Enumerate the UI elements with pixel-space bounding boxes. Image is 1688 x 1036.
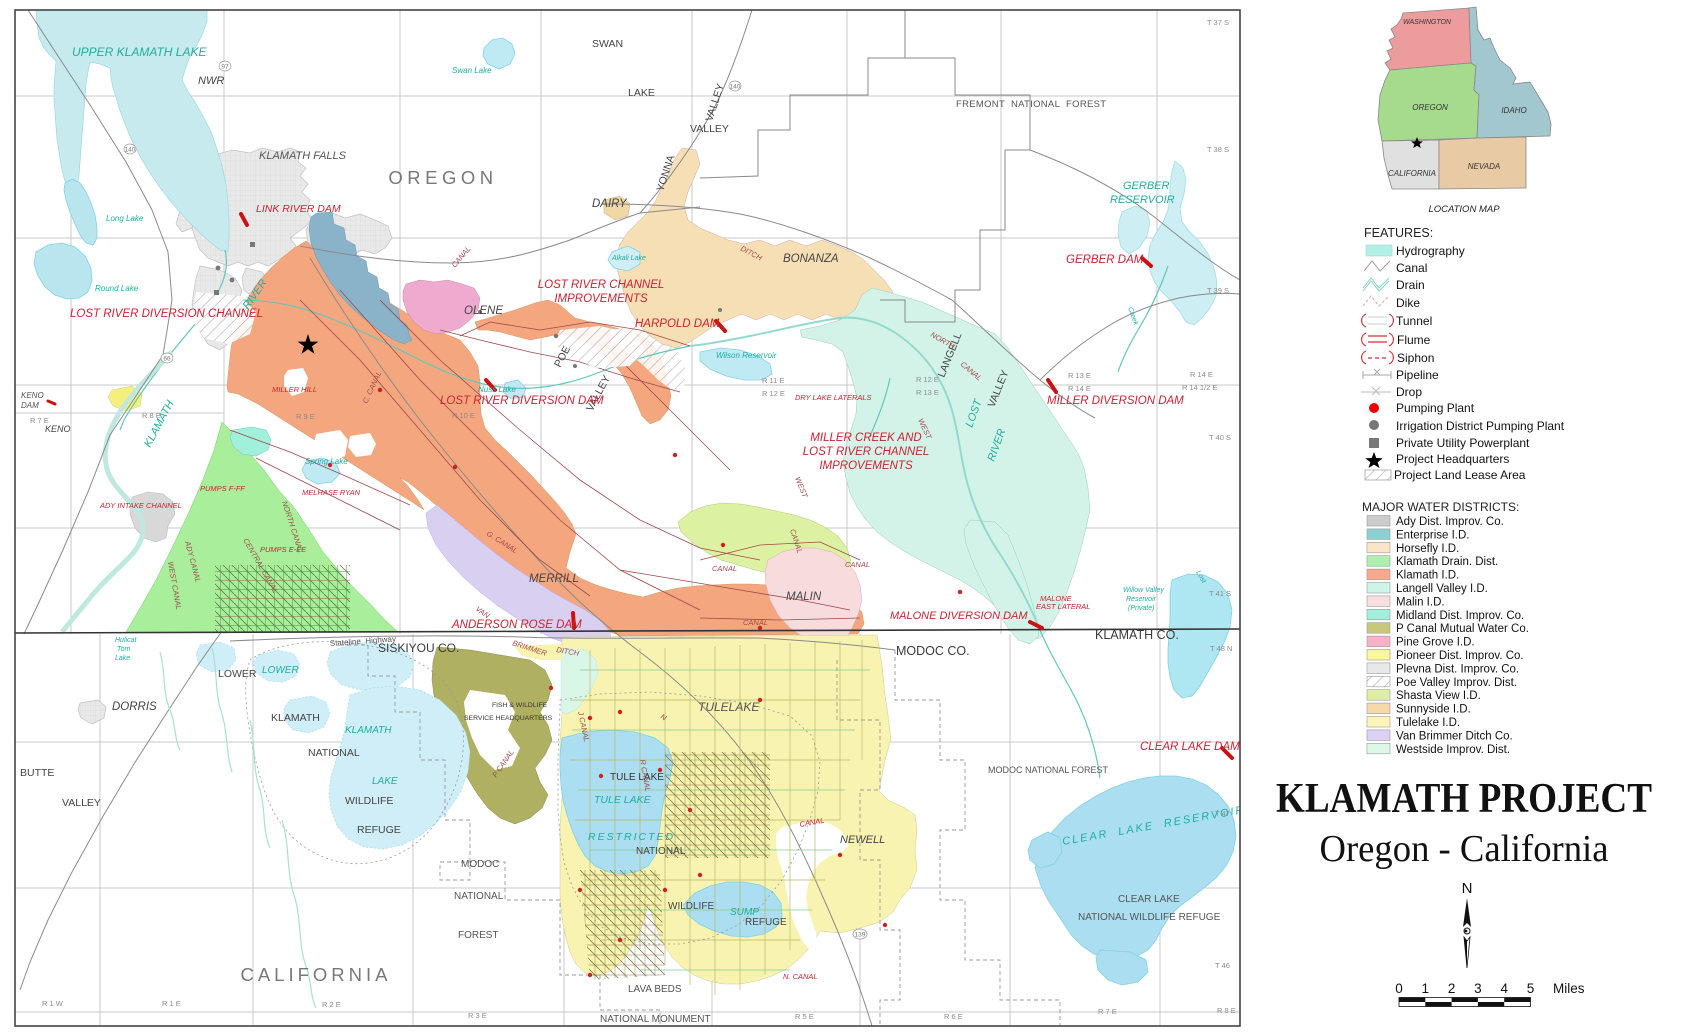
svg-text:Van Brimmer Ditch Co.: Van Brimmer Ditch Co. (1396, 730, 1513, 742)
svg-text:Midland Dist. Improv. Co.: Midland Dist. Improv. Co. (1396, 610, 1524, 622)
svg-text:NEVADA: NEVADA (1468, 162, 1500, 171)
svg-text:OREGON: OREGON (388, 167, 497, 188)
svg-text:Klamath I.D.: Klamath I.D. (1396, 570, 1459, 582)
svg-text:FOREST: FOREST (458, 930, 499, 941)
svg-text:MAJOR WATER DISTRICTS:: MAJOR WATER DISTRICTS: (1362, 500, 1519, 514)
svg-text:T 41 S: T 41 S (1209, 589, 1231, 598)
svg-text:GERBER DAM: GERBER DAM (1066, 254, 1144, 266)
svg-text:KLAMATH CO.: KLAMATH CO. (1095, 628, 1179, 642)
svg-text:DAIRY: DAIRY (592, 198, 628, 210)
svg-text:MODOC NATIONAL FOREST: MODOC NATIONAL FOREST (988, 765, 1109, 775)
svg-text:LOWER: LOWER (262, 665, 299, 676)
svg-text:KLAMATH: KLAMATH (271, 712, 320, 724)
svg-text:T 47: T 47 (1215, 809, 1230, 818)
svg-text:CALIFORNIA: CALIFORNIA (1388, 169, 1436, 178)
svg-text:CANAL: CANAL (743, 618, 768, 627)
svg-text:P Canal Mutual Water Co.: P Canal Mutual Water Co. (1396, 623, 1529, 635)
svg-text:140: 140 (125, 147, 136, 154)
svg-text:UPPER KLAMATH LAKE: UPPER KLAMATH LAKE (72, 45, 207, 59)
svg-text:Pine Grove I.D.: Pine Grove I.D. (1396, 637, 1475, 649)
svg-text:MALONE DIVERSION DAM: MALONE DIVERSION DAM (890, 610, 1028, 622)
svg-text:Shasta View I.D.: Shasta View I.D. (1396, 690, 1481, 702)
svg-text:CLEAR LAKE: CLEAR LAKE (1118, 894, 1180, 905)
svg-text:1: 1 (1422, 981, 1430, 996)
svg-text:Westside Improv. Dist.: Westside Improv. Dist. (1396, 744, 1510, 756)
svg-text:FREMONT NATIONAL FOREST: FREMONT NATIONAL FOREST (956, 99, 1106, 110)
svg-text:CALIFORNIA: CALIFORNIA (240, 964, 391, 985)
svg-text:Tunnel: Tunnel (1396, 314, 1432, 328)
svg-text:KLAMATH FALLS: KLAMATH FALLS (259, 150, 347, 162)
svg-text:(Private): (Private) (1128, 605, 1154, 612)
svg-text:MODOC: MODOC (461, 859, 499, 870)
svg-text:R 2 E: R 2 E (322, 1000, 341, 1009)
svg-text:KLAMATH: KLAMATH (345, 725, 392, 736)
svg-text:Oregon - California: Oregon - California (1320, 828, 1609, 870)
svg-text:R 11 E: R 11 E (762, 376, 784, 385)
svg-text:NATIONAL: NATIONAL (636, 846, 686, 857)
svg-text:R 14 1/2 E: R 14 1/2 E (1182, 383, 1217, 392)
svg-text:Swan Lake: Swan Lake (452, 66, 492, 75)
svg-text:LOST RIVER DIVERSION CHANNEL: LOST RIVER DIVERSION CHANNEL (70, 308, 263, 320)
svg-text:Willow Valley: Willow Valley (1123, 587, 1164, 594)
svg-text:R 5 E: R 5 E (795, 1012, 814, 1021)
svg-text:R 1 W: R 1 W (42, 999, 64, 1008)
svg-text:REFUGE: REFUGE (357, 824, 401, 836)
svg-text:T 37 S: T 37 S (1207, 18, 1229, 27)
svg-text:BONANZA: BONANZA (783, 253, 839, 265)
svg-text:BUTTE: BUTTE (20, 767, 54, 779)
svg-text:DRY LAKE LATERALS: DRY LAKE LATERALS (795, 393, 872, 402)
svg-text:R 8 E: R 8 E (1217, 1006, 1236, 1015)
svg-text:EAST LATERAL: EAST LATERAL (1036, 602, 1090, 611)
svg-text:WILDLIFE: WILDLIFE (345, 795, 393, 807)
svg-text:HARPOLD DAM: HARPOLD DAM (635, 318, 720, 330)
svg-text:Tom: Tom (117, 646, 131, 653)
svg-text:Plevna Dist. Improv. Co.: Plevna Dist. Improv. Co. (1396, 663, 1519, 675)
svg-text:R 13 E: R 13 E (1068, 371, 1091, 380)
svg-text:ADY INTAKE CHANNEL: ADY INTAKE CHANNEL (99, 501, 182, 510)
svg-text:R 8 E: R 8 E (142, 411, 161, 420)
svg-text:T 46: T 46 (1215, 961, 1230, 970)
svg-text:WASHINGTON: WASHINGTON (1403, 19, 1452, 26)
svg-text:Poe Valley Improv. Dist.: Poe Valley Improv. Dist. (1396, 677, 1517, 689)
svg-text:R 14 E: R 14 E (1190, 370, 1213, 379)
svg-text:MILLER DIVERSION DAM: MILLER DIVERSION DAM (1047, 395, 1184, 407)
svg-text:0: 0 (1395, 981, 1403, 996)
svg-text:LOST RIVER DIVERSION DAM: LOST RIVER DIVERSION DAM (440, 395, 604, 407)
svg-text:Private Utility Powerplant: Private Utility Powerplant (1396, 436, 1530, 450)
svg-text:NATIONAL MONUMENT: NATIONAL MONUMENT (600, 1014, 711, 1025)
svg-text:KENO: KENO (45, 424, 71, 434)
svg-text:Drain: Drain (1396, 278, 1425, 292)
svg-text:LOCATION MAP: LOCATION MAP (1428, 204, 1500, 215)
svg-text:MILLER HILL: MILLER HILL (272, 385, 317, 394)
svg-text:LOST RIVER CHANNEL: LOST RIVER CHANNEL (803, 446, 930, 458)
svg-text:NEWELL: NEWELL (840, 834, 885, 846)
svg-text:Hulicat: Hulicat (115, 637, 137, 644)
svg-text:T 48 N: T 48 N (1210, 644, 1232, 653)
svg-text:140: 140 (730, 84, 741, 91)
svg-text:SWAN: SWAN (592, 38, 623, 50)
svg-text:N: N (1462, 880, 1473, 897)
svg-text:IDAHO: IDAHO (1501, 106, 1526, 115)
svg-text:T 40 S: T 40 S (1209, 433, 1231, 442)
svg-text:NATIONAL WILDLIFE REFUGE: NATIONAL WILDLIFE REFUGE (1078, 912, 1221, 923)
svg-text:TULE LAKE: TULE LAKE (594, 794, 652, 806)
svg-text:139: 139 (855, 932, 866, 939)
svg-text:OREGON: OREGON (1412, 103, 1448, 112)
svg-text:Lake: Lake (115, 655, 130, 662)
svg-text:R 12 E: R 12 E (916, 375, 939, 384)
svg-text:LOST RIVER CHANNEL: LOST RIVER CHANNEL (538, 279, 665, 291)
svg-text:CANAL: CANAL (845, 560, 870, 569)
svg-text:Langell Valley I.D.: Langell Valley I.D. (1396, 583, 1488, 595)
svg-text:Flume: Flume (1397, 333, 1431, 347)
svg-text:CANAL: CANAL (712, 564, 737, 573)
svg-text:LINK RIVER DAM: LINK RIVER DAM (256, 203, 341, 215)
svg-text:R 6 E: R 6 E (944, 1012, 963, 1021)
svg-text:GERBER: GERBER (1123, 180, 1170, 192)
svg-text:NWR: NWR (198, 75, 224, 87)
svg-text:R 10 E: R 10 E (452, 411, 475, 420)
svg-text:IMPROVEMENTS: IMPROVEMENTS (819, 460, 913, 472)
svg-text:Tulelake I.D.: Tulelake I.D. (1396, 717, 1460, 729)
svg-text:R 9 E: R 9 E (296, 412, 315, 421)
svg-text:R 13 E: R 13 E (916, 388, 939, 397)
svg-text:R 7 E: R 7 E (1098, 1007, 1117, 1016)
svg-text:Ady Dist. Improv. Co.: Ady Dist. Improv. Co. (1396, 516, 1504, 528)
svg-text:Irrigation District Pumping Pl: Irrigation District Pumping Plant (1396, 419, 1565, 433)
svg-text:R 1 E: R 1 E (162, 999, 181, 1008)
svg-text:PUMPS F-FF: PUMPS F-FF (200, 484, 245, 493)
svg-text:Miles: Miles (1553, 981, 1585, 996)
svg-text:NATIONAL: NATIONAL (308, 747, 360, 759)
svg-text:VALLEY: VALLEY (62, 797, 101, 809)
svg-text:Reservoir: Reservoir (1126, 596, 1157, 603)
svg-text:LOWER: LOWER (218, 668, 257, 680)
svg-text:Pioneer Dist. Improv. Co.: Pioneer Dist. Improv. Co. (1396, 650, 1524, 662)
svg-text:Klamath Drain. Dist.: Klamath Drain. Dist. (1396, 556, 1498, 568)
svg-text:Pumping Plant: Pumping Plant (1396, 401, 1475, 415)
svg-text:KENO: KENO (21, 391, 44, 400)
svg-text:TULE LAKE: TULE LAKE (610, 772, 664, 783)
svg-text:Enterprise I.D.: Enterprise I.D. (1396, 529, 1470, 541)
svg-text:RESERVOIR: RESERVOIR (1110, 194, 1175, 206)
svg-text:Hydrography: Hydrography (1396, 244, 1465, 258)
svg-text:DORRIS: DORRIS (112, 701, 157, 713)
svg-text:R 12 E: R 12 E (762, 389, 785, 398)
svg-text:Horsefly I.D.: Horsefly I.D. (1396, 543, 1459, 555)
svg-text:IMPROVEMENTS: IMPROVEMENTS (554, 293, 648, 305)
svg-text:REFUGE: REFUGE (745, 917, 787, 928)
svg-text:MELHASE RYAN: MELHASE RYAN (302, 488, 361, 497)
svg-text:OLENE: OLENE (464, 305, 503, 317)
svg-text:Round Lake: Round Lake (95, 284, 139, 293)
svg-text:DAM: DAM (21, 401, 39, 410)
svg-text:NATIONAL: NATIONAL (454, 891, 504, 902)
svg-text:Drop: Drop (1396, 385, 1422, 399)
svg-text:LAKE: LAKE (628, 87, 655, 99)
svg-text:MERRILL: MERRILL (529, 573, 579, 585)
svg-text:WILDLIFE: WILDLIFE (668, 901, 714, 912)
svg-text:4: 4 (1500, 981, 1508, 996)
svg-text:R 14 E: R 14 E (1068, 384, 1091, 393)
svg-text:LAKE: LAKE (372, 776, 398, 787)
svg-text:3: 3 (1474, 981, 1482, 996)
svg-text:Malin I.D.: Malin I.D. (1396, 596, 1445, 608)
svg-text:SERVICE HEADQUARTERS: SERVICE HEADQUARTERS (464, 715, 553, 722)
svg-text:R 7 E: R 7 E (30, 416, 49, 425)
svg-text:VALLEY: VALLEY (690, 123, 729, 135)
svg-text:5: 5 (1527, 981, 1535, 996)
svg-text:FEATURES:: FEATURES: (1364, 226, 1433, 240)
svg-text:Long Lake: Long Lake (106, 214, 144, 223)
svg-text:66: 66 (163, 356, 171, 363)
svg-text:Spring Lake: Spring Lake (305, 457, 348, 466)
svg-text:Siphon: Siphon (1397, 351, 1434, 365)
svg-text:Pipeline: Pipeline (1396, 368, 1439, 382)
svg-text:Dike: Dike (1396, 296, 1420, 310)
svg-text:MODOC CO.: MODOC CO. (896, 644, 970, 658)
svg-text:2: 2 (1448, 981, 1456, 996)
svg-text:Canal: Canal (1396, 261, 1427, 275)
svg-text:Project Land Lease Area: Project Land Lease Area (1394, 468, 1526, 482)
svg-text:TULELAKE: TULELAKE (698, 700, 760, 714)
svg-text:N. CANAL: N. CANAL (783, 972, 818, 981)
svg-text:SUMP: SUMP (730, 907, 759, 918)
svg-text:CLEAR LAKE DAM: CLEAR LAKE DAM (1140, 741, 1240, 753)
svg-text:Project Headquarters: Project Headquarters (1396, 452, 1509, 466)
svg-text:T 39 S: T 39 S (1207, 286, 1229, 295)
svg-text:MALIN: MALIN (786, 591, 822, 603)
svg-text:MILLER CREEK AND: MILLER CREEK AND (810, 432, 921, 444)
svg-text:Wilson Reservoir: Wilson Reservoir (716, 351, 777, 360)
svg-text:Sunnyside I.D.: Sunnyside I.D. (1396, 704, 1471, 716)
svg-text:97: 97 (221, 64, 229, 71)
svg-text:Alkali Lake: Alkali Lake (611, 255, 646, 262)
svg-text:T 38 S: T 38 S (1207, 145, 1229, 154)
svg-text:KLAMATH PROJECT: KLAMATH PROJECT (1276, 776, 1652, 822)
svg-text:FISH & WILDLIFE: FISH & WILDLIFE (492, 702, 548, 709)
svg-text:ANDERSON ROSE DAM: ANDERSON ROSE DAM (451, 619, 582, 631)
svg-text:Nuss Lake: Nuss Lake (478, 385, 516, 394)
svg-text:R 3 E: R 3 E (468, 1011, 487, 1020)
svg-text:RESTRICTED: RESTRICTED (588, 831, 675, 843)
svg-text:LAVA BEDS: LAVA BEDS (628, 984, 682, 995)
